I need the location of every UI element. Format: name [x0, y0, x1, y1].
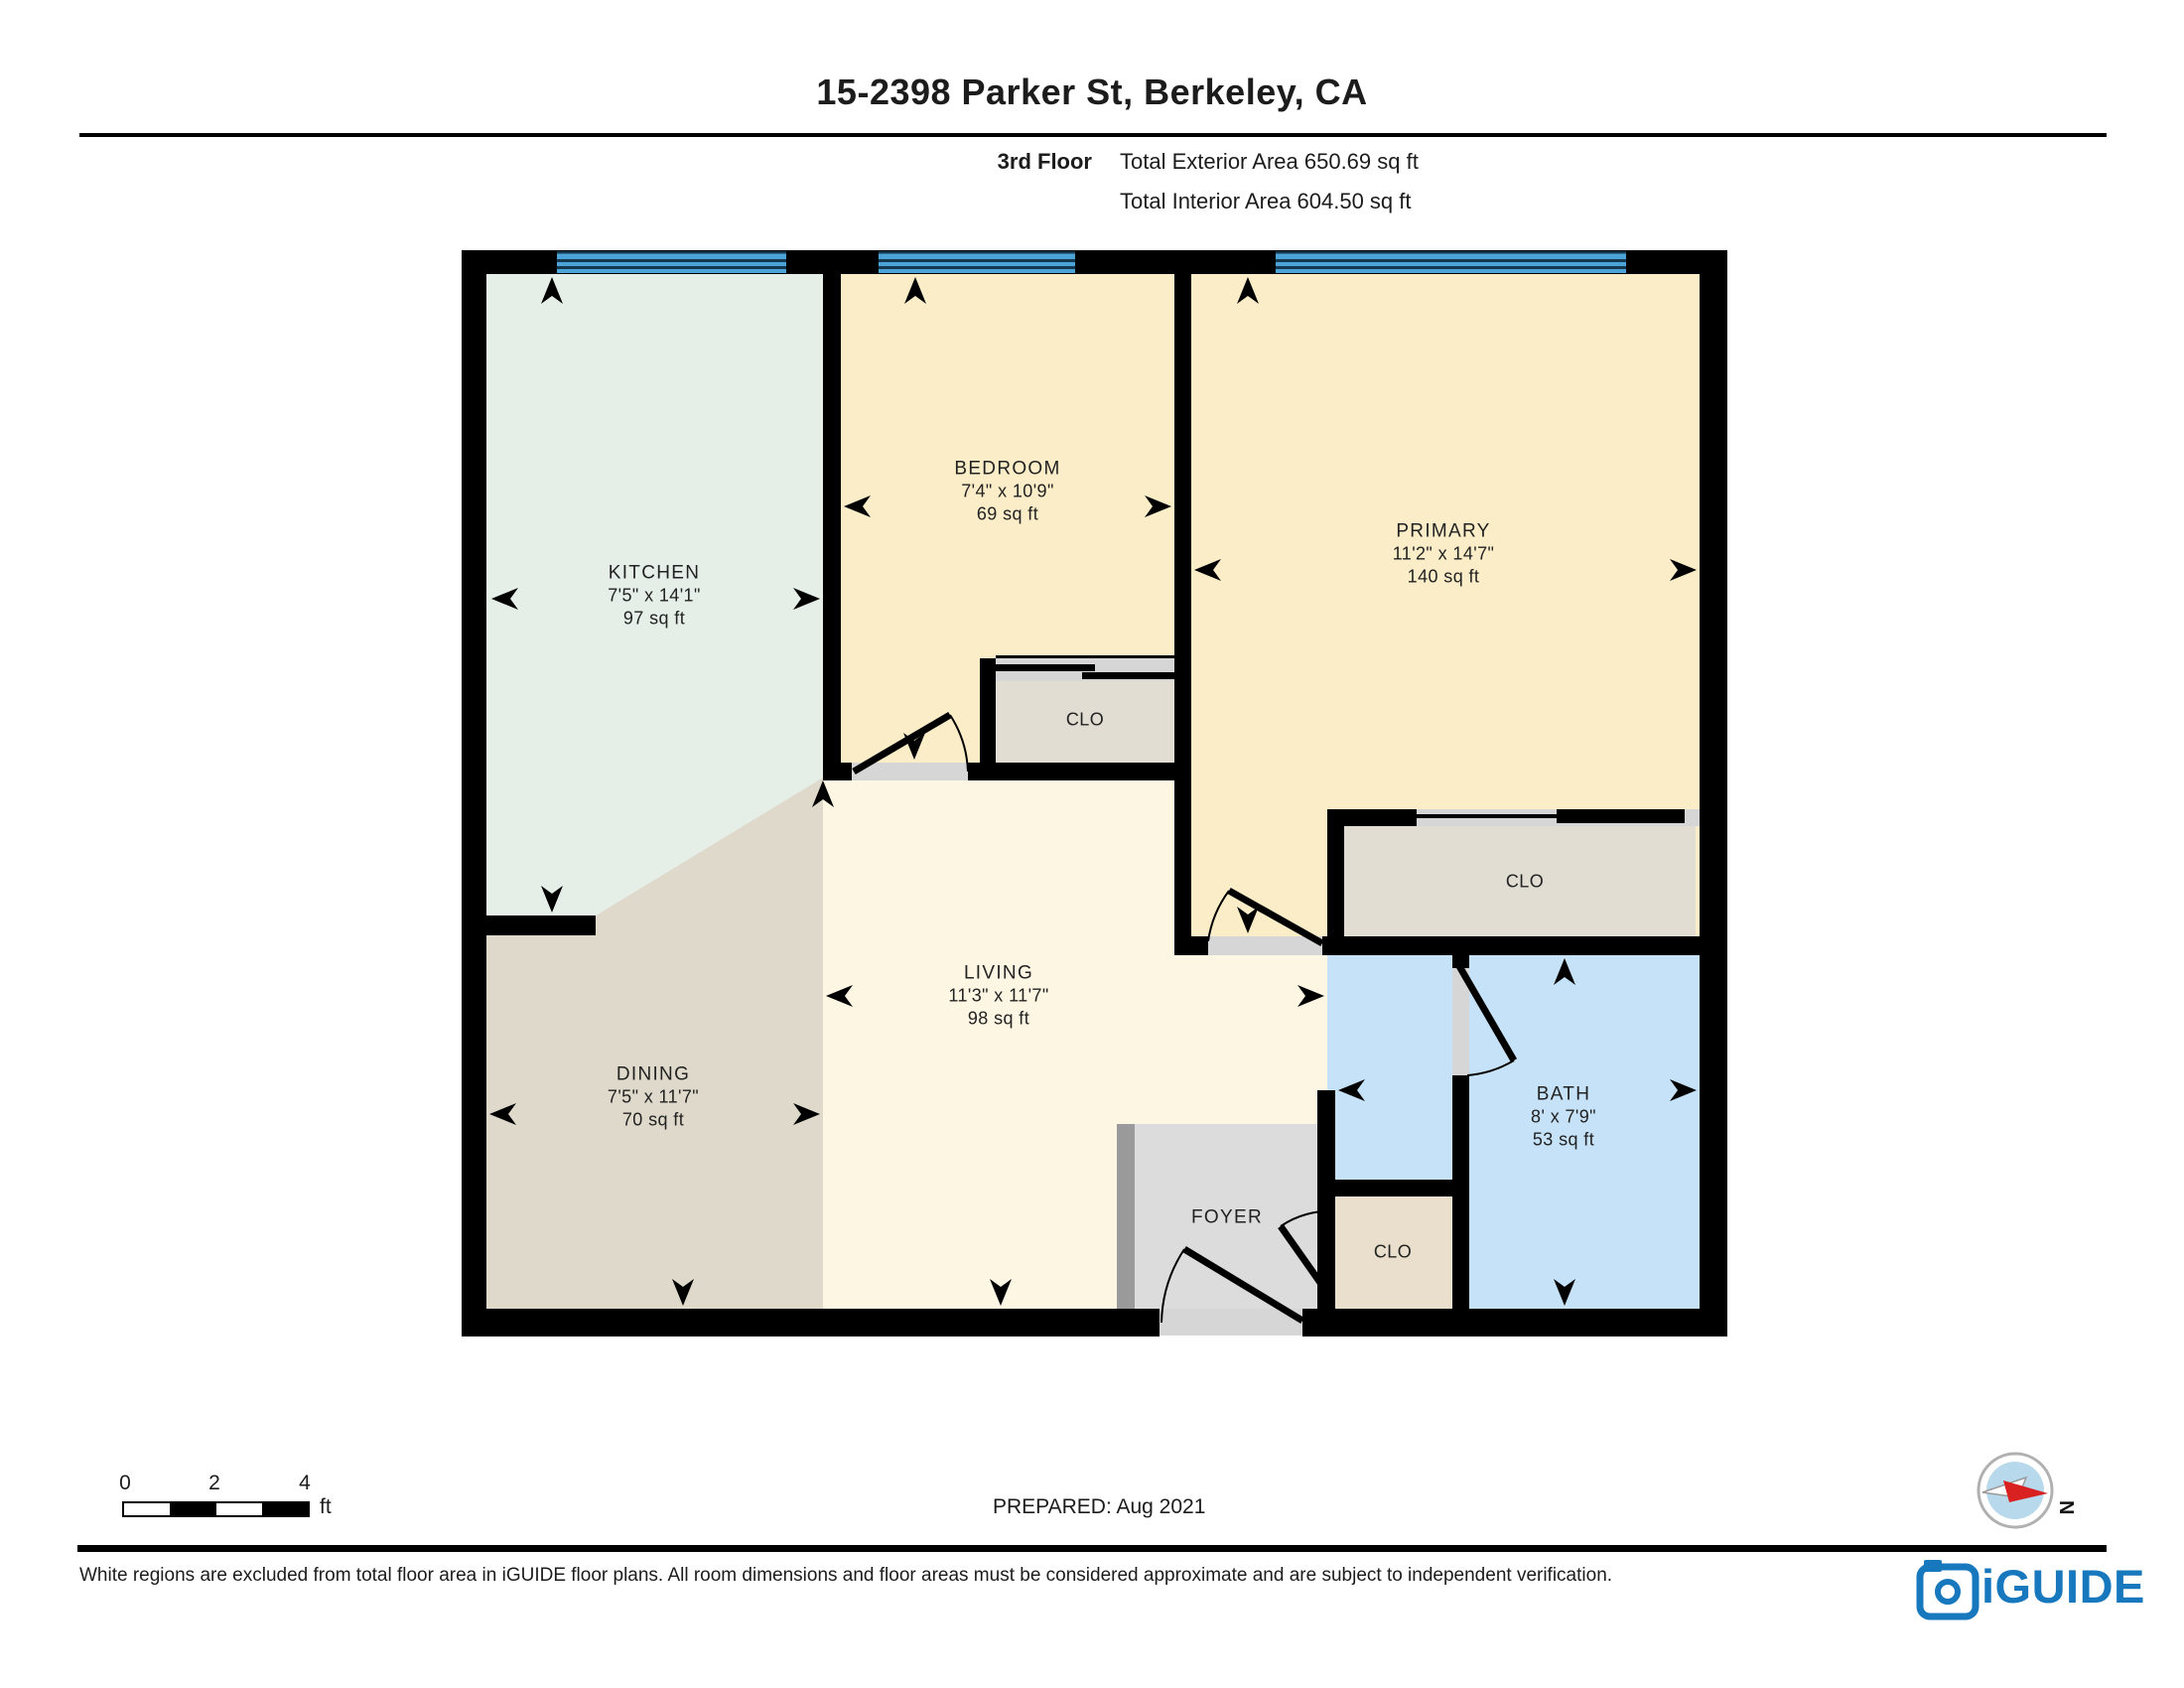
bath-label: BATH 8' x 7'9" 53 sq ft	[1531, 1083, 1596, 1152]
room-area: 70 sq ft	[608, 1109, 699, 1132]
floorplan-page: 15-2398 Parker St, Berkeley, CA 3rd Floo…	[0, 0, 2184, 1688]
floorplan-drawing: N	[0, 0, 2184, 1688]
primary-label: PRIMARY 11'2" x 14'7" 140 sq ft	[1393, 520, 1495, 589]
window-frame-line	[879, 259, 1075, 262]
sliding-door-panel	[1417, 814, 1557, 818]
entry-door-sill	[1160, 1309, 1302, 1336]
bedroom-closet-sliding-door	[996, 655, 1174, 681]
room-name: KITCHEN	[608, 562, 701, 585]
room-name: BEDROOM	[954, 458, 1060, 481]
room-area: 140 sq ft	[1393, 566, 1495, 589]
wall-primary-bottom	[1322, 936, 1700, 955]
wall-corridor-closet	[1327, 1180, 1469, 1196]
room-area: 97 sq ft	[608, 608, 701, 631]
footer-disclaimer: White regions are excluded from total fl…	[79, 1565, 1612, 1587]
wall-bottom-right	[1302, 1309, 1727, 1336]
room-dims: 11'2" x 14'7"	[1393, 543, 1495, 566]
scale-unit: ft	[320, 1495, 332, 1519]
window-frame-line	[557, 266, 786, 269]
living-label: LIVING 11'3" x 11'7" 98 sq ft	[948, 962, 1048, 1031]
bedroom-label: BEDROOM 7'4" x 10'9" 69 sq ft	[954, 458, 1060, 526]
wall-left	[462, 250, 486, 1336]
window-kitchen	[557, 251, 786, 273]
kitchen-label: KITCHEN 7'5" x 14'1" 97 sq ft	[608, 562, 701, 631]
dining-label: DINING 7'5" x 11'7" 70 sq ft	[608, 1063, 699, 1132]
window-frame-line	[1276, 266, 1626, 269]
room-dims: 7'5" x 14'1"	[608, 585, 701, 608]
window-frame-line	[879, 251, 1075, 254]
room-dims: 11'3" x 11'7"	[948, 985, 1048, 1008]
room-name: CLO	[1506, 871, 1544, 894]
compass: N	[1979, 1454, 2077, 1527]
window-primary	[1276, 251, 1626, 273]
wall-kitchen-bedroom	[823, 250, 841, 780]
scale-segment	[170, 1503, 215, 1515]
scale-tick-0: 0	[119, 1472, 131, 1495]
primary-closet-sliding-door	[1417, 809, 1700, 826]
scale-tick-4: 4	[299, 1472, 311, 1495]
room-name: CLO	[1066, 709, 1104, 732]
room-area: 69 sq ft	[954, 503, 1060, 526]
room-fills	[486, 274, 1700, 1329]
room-area: 98 sq ft	[948, 1008, 1048, 1031]
foyer-closet-label: CLO	[1374, 1241, 1412, 1264]
wall-bedroom-jamb-left	[823, 763, 852, 780]
wall-bedroom-closet-left	[980, 658, 996, 780]
wall-foyer-right	[1317, 1090, 1335, 1309]
sliding-door-panel	[1082, 672, 1174, 679]
window-frame-line	[557, 259, 786, 262]
room-name: DINING	[608, 1063, 699, 1086]
footer-divider	[77, 1545, 2107, 1552]
wall-right	[1700, 250, 1727, 1336]
room-dims: 7'4" x 10'9"	[954, 481, 1060, 503]
room-name: LIVING	[948, 962, 1048, 985]
wall-bottom-left	[462, 1309, 1160, 1336]
window-frame-line	[879, 266, 1075, 269]
primary-closet-label: CLO	[1506, 871, 1544, 894]
wall-primary-closet-left	[1327, 809, 1344, 955]
room-area: 53 sq ft	[1531, 1129, 1596, 1152]
scale-segment	[262, 1503, 308, 1515]
room-name: FOYER	[1191, 1206, 1263, 1229]
bedroom-closet-label: CLO	[1066, 709, 1104, 732]
iguide-wordmark: iGUIDE	[1981, 1557, 2145, 1617]
scale-segment	[216, 1503, 262, 1515]
room-dims: 7'5" x 11'7"	[608, 1086, 699, 1109]
window-frame-line	[1276, 259, 1626, 262]
wall-primary-closet-top	[1327, 809, 1417, 826]
primary-door-sill	[1208, 936, 1322, 955]
wall-bedroom-primary	[1174, 250, 1191, 955]
window-bedroom	[879, 251, 1075, 273]
foyer-label: FOYER	[1191, 1206, 1263, 1229]
scale-tick-2: 2	[208, 1472, 220, 1495]
scale-segment	[124, 1503, 170, 1515]
compass-north-label: N	[2055, 1500, 2077, 1514]
wall-bedroom-bottom	[968, 763, 1174, 780]
window-frame-line	[1276, 251, 1626, 254]
room-name: CLO	[1374, 1241, 1412, 1264]
sliding-door-panel	[1557, 809, 1685, 823]
iguide-logo: iGUIDE	[1914, 1557, 2145, 1617]
foyer-wall-strip	[1117, 1124, 1135, 1309]
room-dims: 8' x 7'9"	[1531, 1106, 1596, 1129]
wall-kitchen-stub	[462, 915, 596, 935]
room-name: BATH	[1531, 1083, 1596, 1106]
prepared-date: PREPARED: Aug 2021	[993, 1495, 1205, 1519]
wall-primary-jamb-left	[1174, 936, 1208, 955]
window-frame-line	[557, 251, 786, 254]
room-name: PRIMARY	[1393, 520, 1495, 543]
sliding-door-rail	[996, 655, 1174, 658]
sliding-door-panel	[996, 664, 1095, 671]
scale-bar	[122, 1501, 310, 1517]
